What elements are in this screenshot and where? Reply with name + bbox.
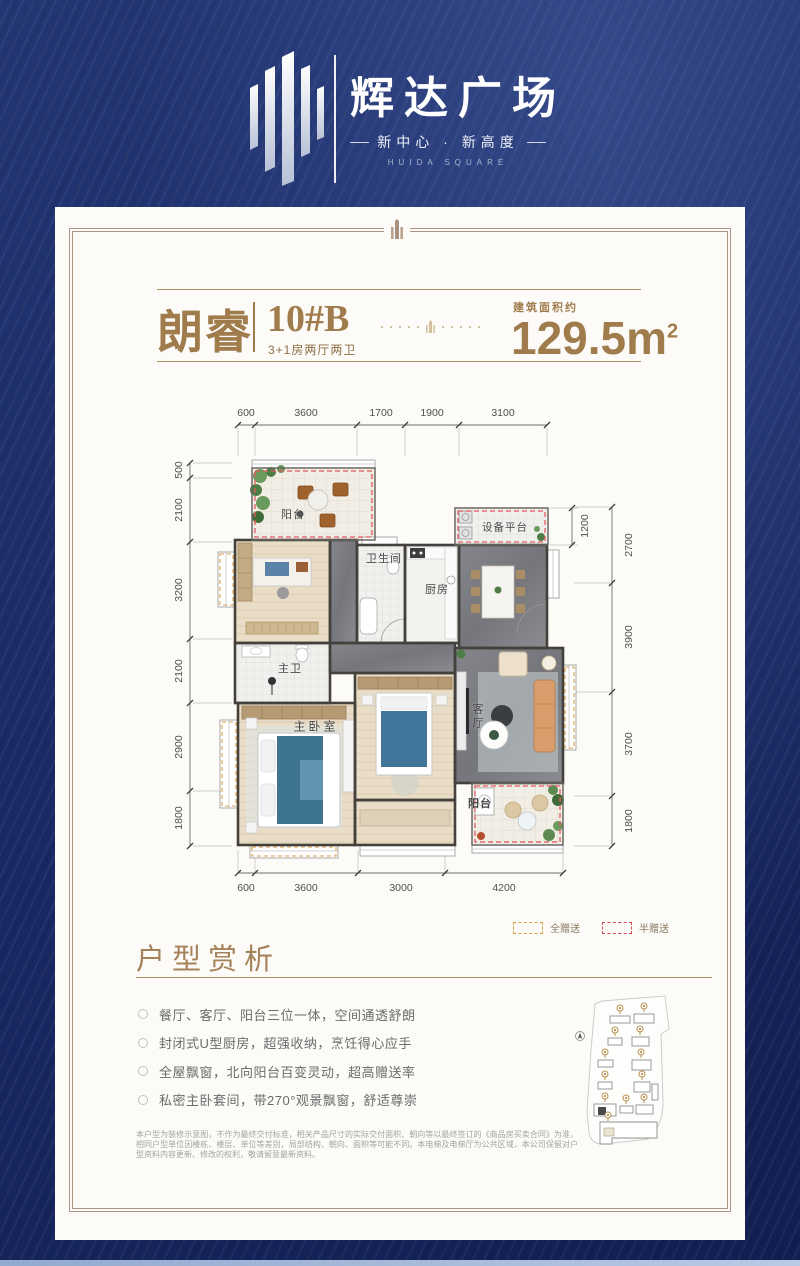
dim-left-2900: 2900 <box>173 735 185 759</box>
dim-left-1800: 1800 <box>173 806 185 830</box>
brand-logo-building-icon <box>248 48 330 186</box>
analysis-point: 全屋飘窗，北向阳台百变灵动，超高赠送率 <box>138 1057 578 1086</box>
area-exponent: 2 <box>667 321 678 343</box>
unit-layout-type: 3+1房两厅两卫 <box>268 341 356 358</box>
analysis-point-text: 封闭式U型厨房，超强收纳，烹饪得心应手 <box>159 1033 412 1052</box>
dim-left-2100a: 2100 <box>173 498 185 522</box>
room-label-kitchen: 厨房 <box>425 581 449 597</box>
brand-title: 辉达广场 <box>350 62 550 126</box>
dim-right-3700: 3700 <box>623 732 635 756</box>
legend-full-gift: 全赠送 <box>513 920 580 935</box>
area-number: 129.5m <box>511 312 667 364</box>
bullet-ring-icon <box>138 1038 148 1048</box>
disclaimer-text: 本户型为装修示意图，不作为最终交付标准，相关产品尺寸的实际交付面积、朝向等以最终… <box>136 1130 578 1160</box>
dim-top-3600: 3600 <box>294 407 318 419</box>
analysis-point: 封闭式U型厨房，超强收纳，烹饪得心应手 <box>138 1029 578 1058</box>
room-label-balcony-south: 阳台 <box>468 795 492 811</box>
unit-name: 朗睿 <box>157 296 253 362</box>
floor-plan: 600 3600 1700 1900 3100 600 3600 3000 42… <box>150 390 670 920</box>
dim-left-500: 500 <box>173 461 185 479</box>
frame-building-icon <box>384 214 410 244</box>
full-gift-swatch <box>513 922 543 934</box>
dim-bottom-600: 600 <box>237 882 255 894</box>
dim-top-1900: 1900 <box>420 407 444 419</box>
slogan-text: 新中心 · 新高度 <box>377 132 518 152</box>
analysis-point-text: 餐厅、客厅、阳台三位一体，空间通透舒朗 <box>159 1005 416 1024</box>
room-label-balcony-north: 阳台 <box>281 506 305 522</box>
analysis-point-text: 全屋飘窗，北向阳台百变灵动，超高赠送率 <box>159 1062 416 1081</box>
area-value: 129.5m2 <box>511 311 678 365</box>
room-corridor <box>330 540 357 643</box>
bullet-ring-icon <box>138 1066 148 1076</box>
dim-right-1800: 1800 <box>623 809 635 833</box>
north-arrow-icon <box>576 1032 585 1041</box>
half-gift-label: 半赠送 <box>639 920 669 935</box>
dim-right-2700: 2700 <box>623 533 635 557</box>
analysis-point-text: 私密主卧套间，带270°观景飘窗，舒适尊崇 <box>159 1090 417 1109</box>
brand-slogan-en: HUIDA SQUARE <box>350 158 546 167</box>
room-label-living: 客厅 <box>469 703 485 731</box>
brand-slogan: 新中心 · 新高度 <box>350 132 546 152</box>
bottom-accent-strip <box>0 1260 800 1266</box>
title-deco-ornament <box>368 320 492 333</box>
room-hallway <box>330 643 455 673</box>
room-label-equipment: 设备平台 <box>482 520 528 535</box>
site-plan <box>572 992 704 1160</box>
room-label-bathroom: 卫生间 <box>366 550 402 566</box>
half-gift-swatch <box>602 922 632 934</box>
analysis-rule <box>136 977 712 978</box>
legend-half-gift: 半赠送 <box>602 920 669 935</box>
dim-equipment-1200: 1200 <box>579 514 591 538</box>
dim-left-2100b: 2100 <box>173 659 185 683</box>
dim-top-1700: 1700 <box>369 407 393 419</box>
bullet-ring-icon <box>138 1095 148 1105</box>
dim-bottom-4200: 4200 <box>492 882 516 894</box>
deco-building-icon <box>426 320 435 333</box>
dim-right-3900: 3900 <box>623 625 635 649</box>
analysis-point: 私密主卧套间，带270°观景飘窗，舒适尊崇 <box>138 1086 578 1115</box>
analysis-title: 户型赏析 <box>136 936 280 978</box>
logo-divider <box>334 55 336 183</box>
room-label-master-bedroom: 主卧室 <box>293 718 338 735</box>
gift-legend: 全赠送 半赠送 <box>513 920 669 935</box>
poster-page: 辉达广场 新中心 · 新高度 HUIDA SQUARE 朗睿 10#B 3+1房… <box>0 0 800 1266</box>
slogan-left-line <box>350 142 369 143</box>
bullet-ring-icon <box>138 1009 148 1019</box>
room-label-master-bathroom: 主卫 <box>278 660 302 676</box>
site-annex <box>604 1128 614 1136</box>
unit-block-number: 10#B <box>267 297 349 341</box>
unit-divider <box>253 302 255 352</box>
dim-top-600: 600 <box>237 407 255 419</box>
dim-left-3200: 3200 <box>173 578 185 602</box>
dim-bottom-3600: 3600 <box>294 882 318 894</box>
dim-top-3100: 3100 <box>491 407 515 419</box>
full-gift-label: 全赠送 <box>550 920 580 935</box>
title-rule-bottom <box>157 361 641 362</box>
slogan-right-line <box>527 142 546 143</box>
analysis-point: 餐厅、客厅、阳台三位一体，空间通透舒朗 <box>138 1000 578 1029</box>
analysis-list: 餐厅、客厅、阳台三位一体，空间通透舒朗 封闭式U型厨房，超强收纳，烹饪得心应手 … <box>138 1000 578 1114</box>
title-rule-top <box>157 289 641 290</box>
dim-bottom-3000: 3000 <box>389 882 413 894</box>
